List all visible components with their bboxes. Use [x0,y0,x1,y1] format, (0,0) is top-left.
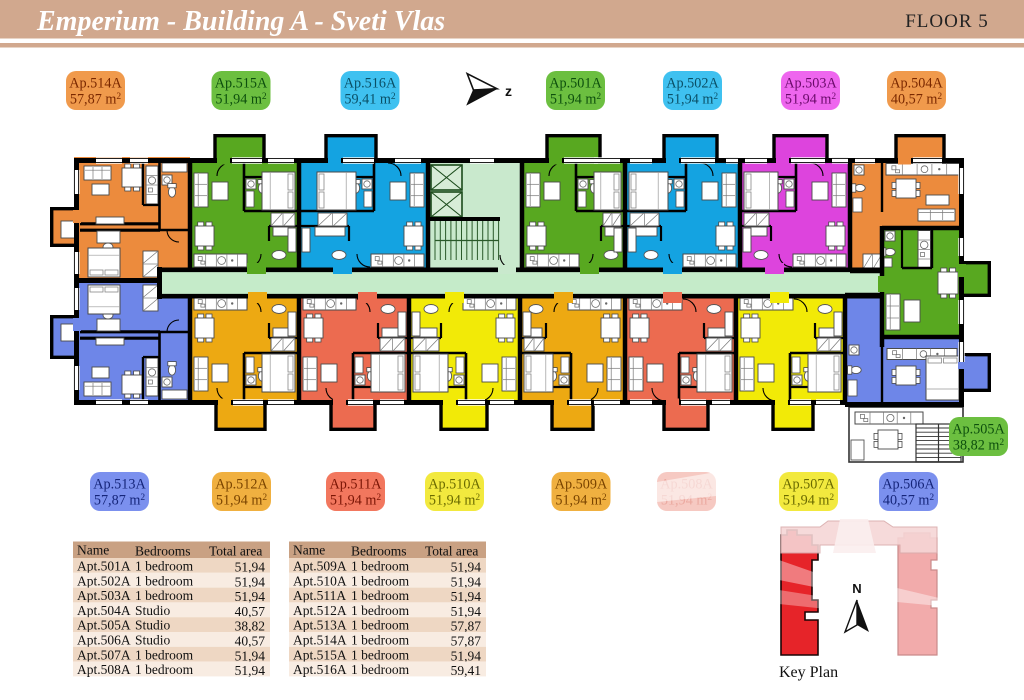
svg-text:Apt.509A: Apt.509A [293,559,347,574]
svg-text:57,87 m2: 57,87 m2 [70,92,122,108]
svg-text:51,94 m2: 51,94 m2 [783,493,835,509]
svg-text:Apt.514A: Apt.514A [293,633,347,648]
svg-text:51,94: 51,94 [235,648,266,663]
svg-text:Apt.505A: Apt.505A [77,618,131,633]
svg-text:51,94: 51,94 [451,560,482,575]
svg-text:Apt.507A: Apt.507A [77,647,131,662]
svg-text:Ap.504A: Ap.504A [890,76,943,92]
svg-text:40,57 m2: 40,57 m2 [883,493,935,509]
svg-text:1 bedroom: 1 bedroom [135,662,194,677]
svg-text:Apt.504A: Apt.504A [77,603,131,618]
svg-text:Apt.508A: Apt.508A [77,662,131,677]
svg-text:1 bedroom: 1 bedroom [351,618,410,633]
svg-text:Apt.513A: Apt.513A [293,618,347,633]
svg-text:51,94: 51,94 [451,648,482,663]
svg-text:51,94: 51,94 [451,574,482,589]
svg-text:51,94: 51,94 [235,663,266,678]
svg-text:Apt.510A: Apt.510A [293,573,347,588]
svg-text:1 bedroom: 1 bedroom [135,573,194,588]
svg-text:1 bedroom: 1 bedroom [135,647,194,662]
svg-text:Studio: Studio [135,633,171,648]
svg-text:Bedrooms: Bedrooms [351,544,407,559]
svg-text:Ap.503A: Ap.503A [784,76,837,92]
svg-text:51,94 m2: 51,94 m2 [667,92,719,108]
svg-text:Apt.503A: Apt.503A [77,588,131,603]
svg-text:Key Plan: Key Plan [779,664,838,681]
svg-text:z: z [505,83,512,99]
svg-text:59,41 m2: 59,41 m2 [344,92,396,108]
svg-text:Ap.501A: Ap.501A [549,76,602,92]
svg-text:Apt.501A: Apt.501A [77,559,131,574]
svg-text:51,94: 51,94 [235,560,266,575]
svg-text:Apt.506A: Apt.506A [77,633,131,648]
svg-text:N: N [852,581,861,596]
svg-text:51,94: 51,94 [451,604,482,619]
svg-text:1 bedroom: 1 bedroom [351,573,410,588]
svg-text:Ap.512A: Ap.512A [215,477,268,493]
svg-text:Ap.514A: Ap.514A [69,76,122,92]
svg-text:Name: Name [77,543,109,558]
svg-text:51,94 m2: 51,94 m2 [555,493,607,509]
svg-text:38,82: 38,82 [235,619,265,634]
svg-text:1 bedroom: 1 bedroom [351,603,410,618]
svg-text:Apt.516A: Apt.516A [293,662,347,677]
svg-text:Total area: Total area [425,544,478,559]
svg-text:Name: Name [293,543,325,558]
svg-text:38,82 m2: 38,82 m2 [953,438,1005,454]
svg-text:51,94 m2: 51,94 m2 [215,92,267,108]
svg-text:40,57 m2: 40,57 m2 [891,92,943,108]
svg-text:Ap.502A: Ap.502A [666,76,719,92]
svg-text:Apt.511A: Apt.511A [293,588,346,603]
svg-text:57,87 m2: 57,87 m2 [94,493,146,509]
svg-text:51,94: 51,94 [451,589,482,604]
svg-text:40,57: 40,57 [235,604,266,619]
svg-text:51,94: 51,94 [235,574,266,589]
svg-text:1 bedroom: 1 bedroom [351,647,410,662]
svg-text:51,94 m2: 51,94 m2 [550,92,602,108]
svg-text:Emperium - Building A - Sveti: Emperium - Building A - Sveti Vlas [36,6,445,37]
svg-text:57,87: 57,87 [451,634,482,649]
svg-text:59,41: 59,41 [451,663,481,678]
svg-text:40,57: 40,57 [235,634,266,649]
svg-text:Ap.516A: Ap.516A [344,76,397,92]
svg-text:Ap.509A: Ap.509A [555,477,608,493]
svg-text:Apt.502A: Apt.502A [77,573,131,588]
svg-text:51,94: 51,94 [235,589,266,604]
svg-text:1 bedroom: 1 bedroom [351,559,410,574]
svg-text:1 bedroom: 1 bedroom [351,633,410,648]
svg-text:57,87: 57,87 [451,619,482,634]
svg-text:51,94 m2: 51,94 m2 [785,92,837,108]
svg-text:Ap.513A: Ap.513A [93,477,146,493]
svg-text:Ap.515A: Ap.515A [215,76,268,92]
svg-text:Ap.510A: Ap.510A [428,477,481,493]
svg-text:Ap.506A: Ap.506A [882,477,935,493]
svg-text:1 bedroom: 1 bedroom [351,588,410,603]
svg-text:1 bedroom: 1 bedroom [351,662,410,677]
svg-text:1 bedroom: 1 bedroom [135,559,194,574]
svg-text:Studio: Studio [135,603,171,618]
svg-text:Ap.511A: Ap.511A [330,477,383,493]
svg-text:FLOOR 5: FLOOR 5 [905,11,989,32]
svg-text:51,94 m2: 51,94 m2 [429,493,481,509]
svg-text:51,94 m2: 51,94 m2 [216,493,268,509]
svg-text:Studio: Studio [135,618,171,633]
svg-text:Ap.505A: Ap.505A [952,422,1005,438]
svg-text:1 bedroom: 1 bedroom [135,588,194,603]
svg-text:Apt.515A: Apt.515A [293,647,347,662]
svg-text:51,94 m2: 51,94 m2 [330,493,382,509]
svg-text:Bedrooms: Bedrooms [135,544,191,559]
svg-text:Ap.507A: Ap.507A [782,477,835,493]
svg-text:Apt.512A: Apt.512A [293,603,347,618]
svg-text:Total area: Total area [209,544,262,559]
